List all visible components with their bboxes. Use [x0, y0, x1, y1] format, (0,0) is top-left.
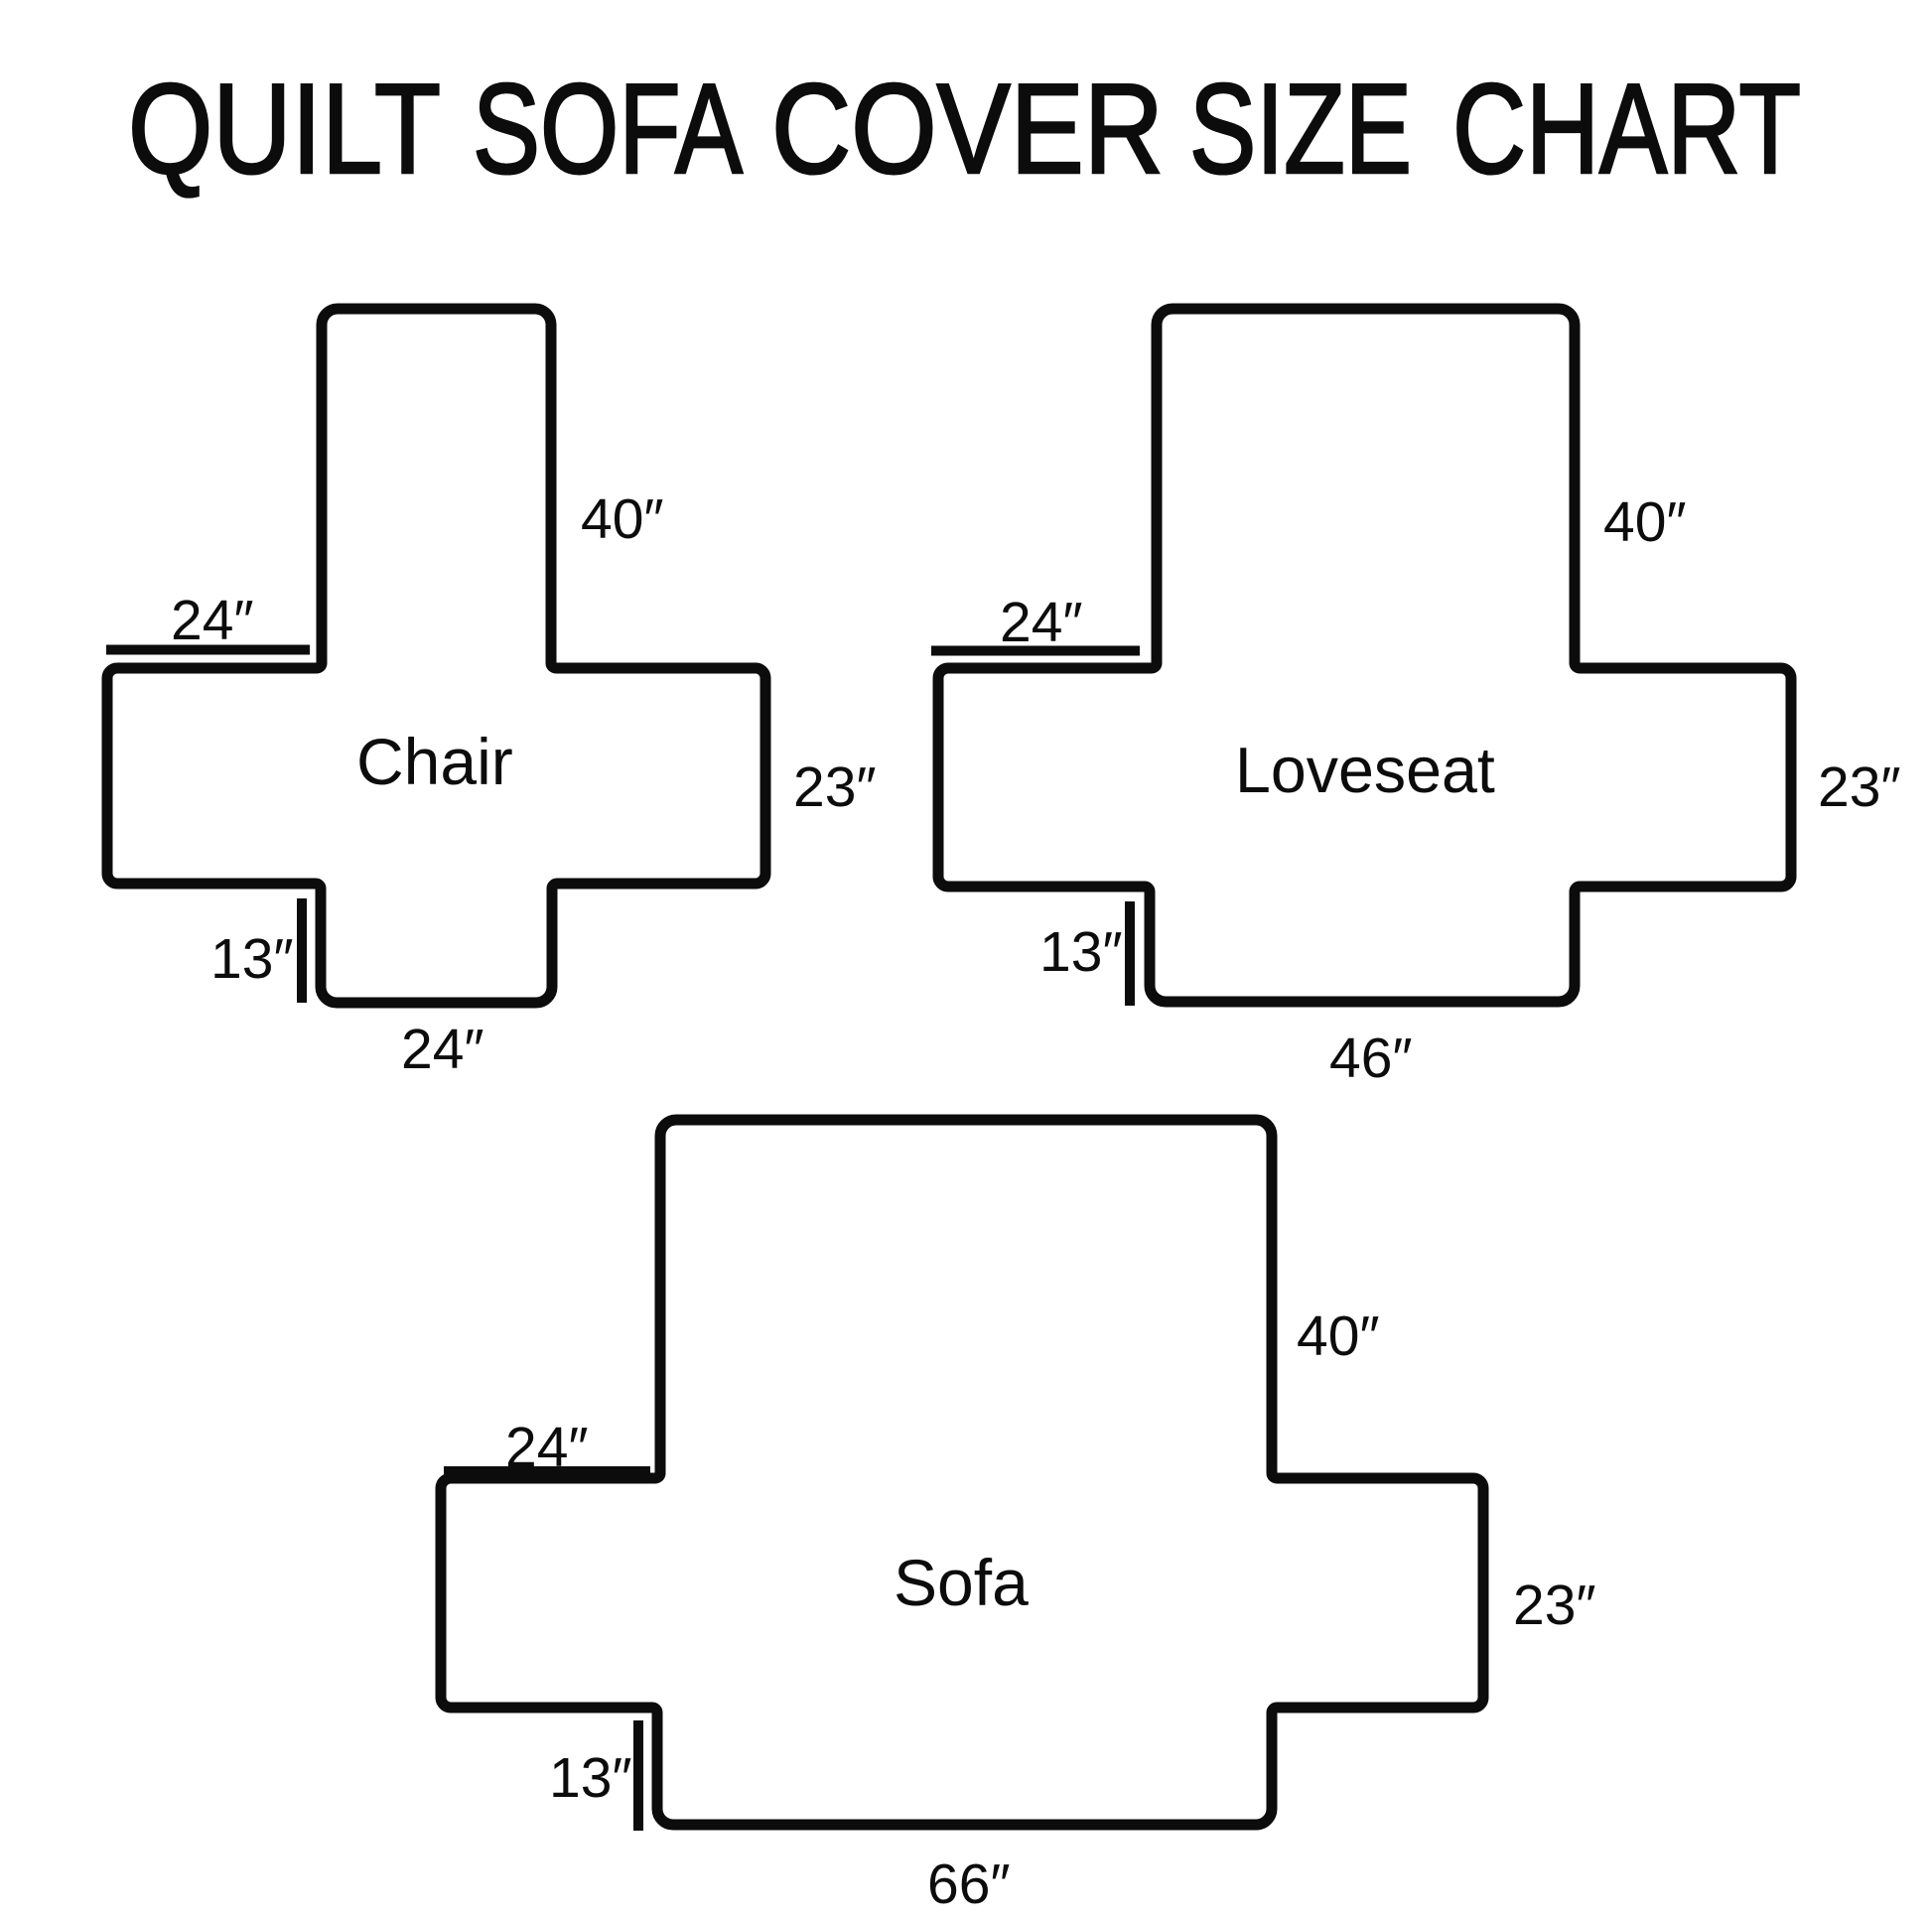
svg-text:46″: 46″ [1329, 1027, 1413, 1090]
svg-text:23″: 23″ [1513, 1574, 1596, 1637]
svg-text:40″: 40″ [1297, 1304, 1380, 1368]
svg-text:23″: 23″ [793, 755, 877, 819]
svg-text:24″: 24″ [1000, 591, 1083, 654]
svg-text:66″: 66″ [927, 1852, 1011, 1916]
svg-text:QUILT: QUILT [128, 58, 441, 201]
svg-text:13″: 13″ [1039, 920, 1123, 984]
svg-text:24″: 24″ [171, 589, 254, 652]
svg-text:40″: 40″ [581, 487, 664, 551]
svg-text:COVER: COVER [771, 58, 1164, 201]
svg-text:Chair: Chair [356, 725, 513, 798]
svg-text:SOFA: SOFA [473, 58, 743, 201]
svg-text:Sofa: Sofa [894, 1546, 1029, 1619]
svg-text:SIZE: SIZE [1189, 58, 1412, 201]
svg-text:Loveseat: Loveseat [1235, 735, 1495, 806]
svg-text:40″: 40″ [1603, 490, 1687, 554]
svg-text:23″: 23″ [1818, 755, 1901, 819]
svg-text:CHART: CHART [1452, 58, 1801, 201]
svg-text:24″: 24″ [401, 1018, 484, 1081]
svg-text:13″: 13″ [210, 927, 294, 991]
svg-text:13″: 13″ [549, 1746, 632, 1810]
